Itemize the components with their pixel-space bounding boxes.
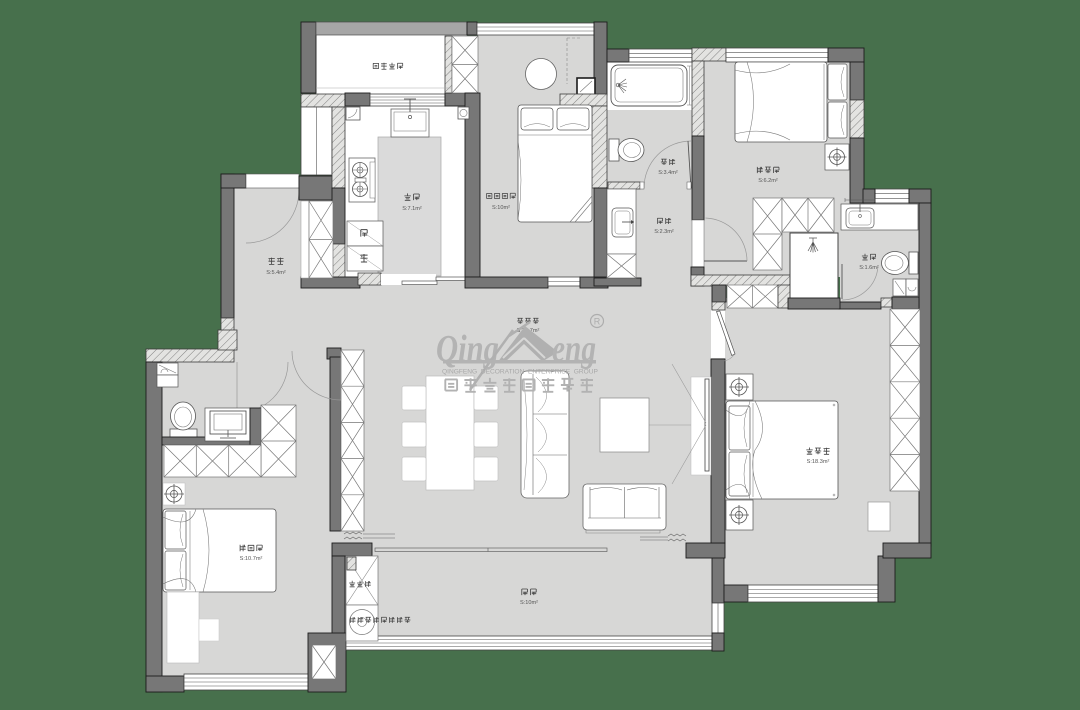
svg-text:QINGFENG DECORATION ENTERPRI: QINGFENG DECORATION ENTERPRISE GROUP	[442, 369, 599, 376]
svg-text:R: R	[594, 317, 601, 327]
svg-text:S:6.2m²: S:6.2m²	[758, 178, 778, 184]
svg-text:S:2.3m²: S:2.3m²	[654, 229, 674, 235]
svg-text:eng: eng	[552, 328, 596, 370]
svg-text:S:1.6m²: S:1.6m²	[859, 265, 879, 271]
svg-text:S:7.1m²: S:7.1m²	[402, 206, 422, 212]
svg-text:S:10.7m²: S:10.7m²	[240, 556, 263, 562]
svg-text:S:10m²: S:10m²	[492, 205, 510, 211]
svg-text:S:5.4m²: S:5.4m²	[266, 270, 286, 276]
svg-text:S:18.3m²: S:18.3m²	[807, 459, 830, 465]
svg-text:S:10m²: S:10m²	[520, 600, 538, 606]
svg-text:S:3.4m²: S:3.4m²	[658, 170, 678, 176]
